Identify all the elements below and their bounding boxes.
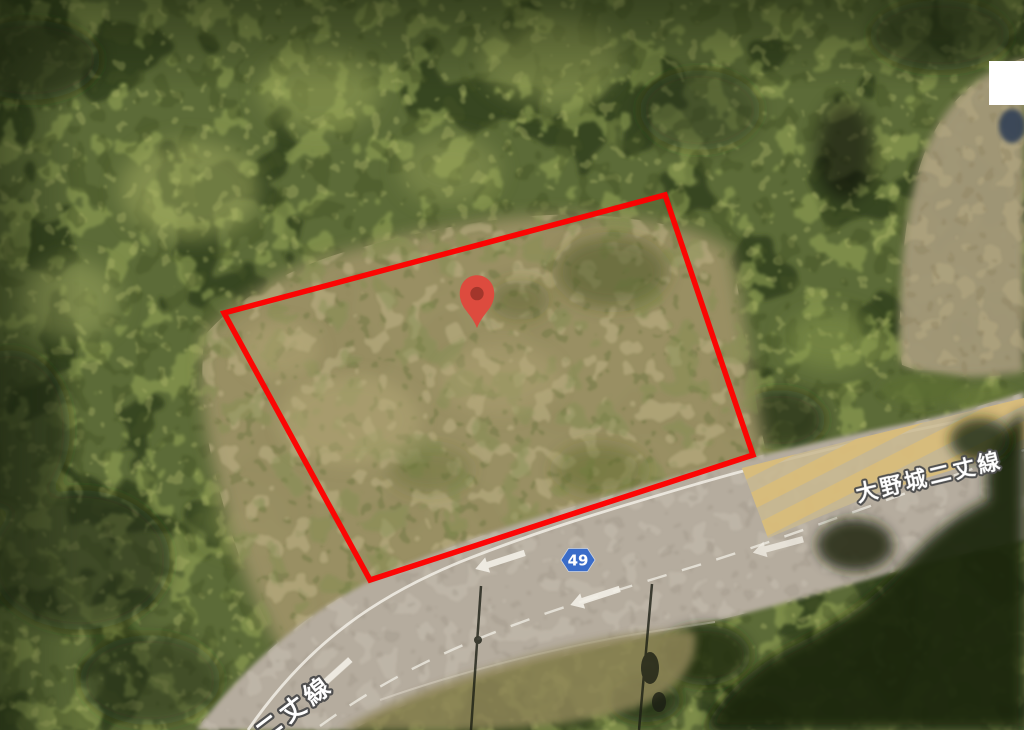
satellite-canvas: 49 大野城二丈線 二丈線 xyxy=(0,0,1024,730)
route-number: 49 xyxy=(568,552,589,570)
redaction-box xyxy=(989,61,1024,105)
vehicle-blob xyxy=(999,109,1024,143)
left-shade xyxy=(0,0,80,730)
top-shade xyxy=(0,0,1024,90)
map-viewport[interactable]: 49 大野城二丈線 二丈線 xyxy=(0,0,1024,730)
pin-dot xyxy=(470,287,483,300)
route-49-badge: 49 xyxy=(561,549,595,572)
